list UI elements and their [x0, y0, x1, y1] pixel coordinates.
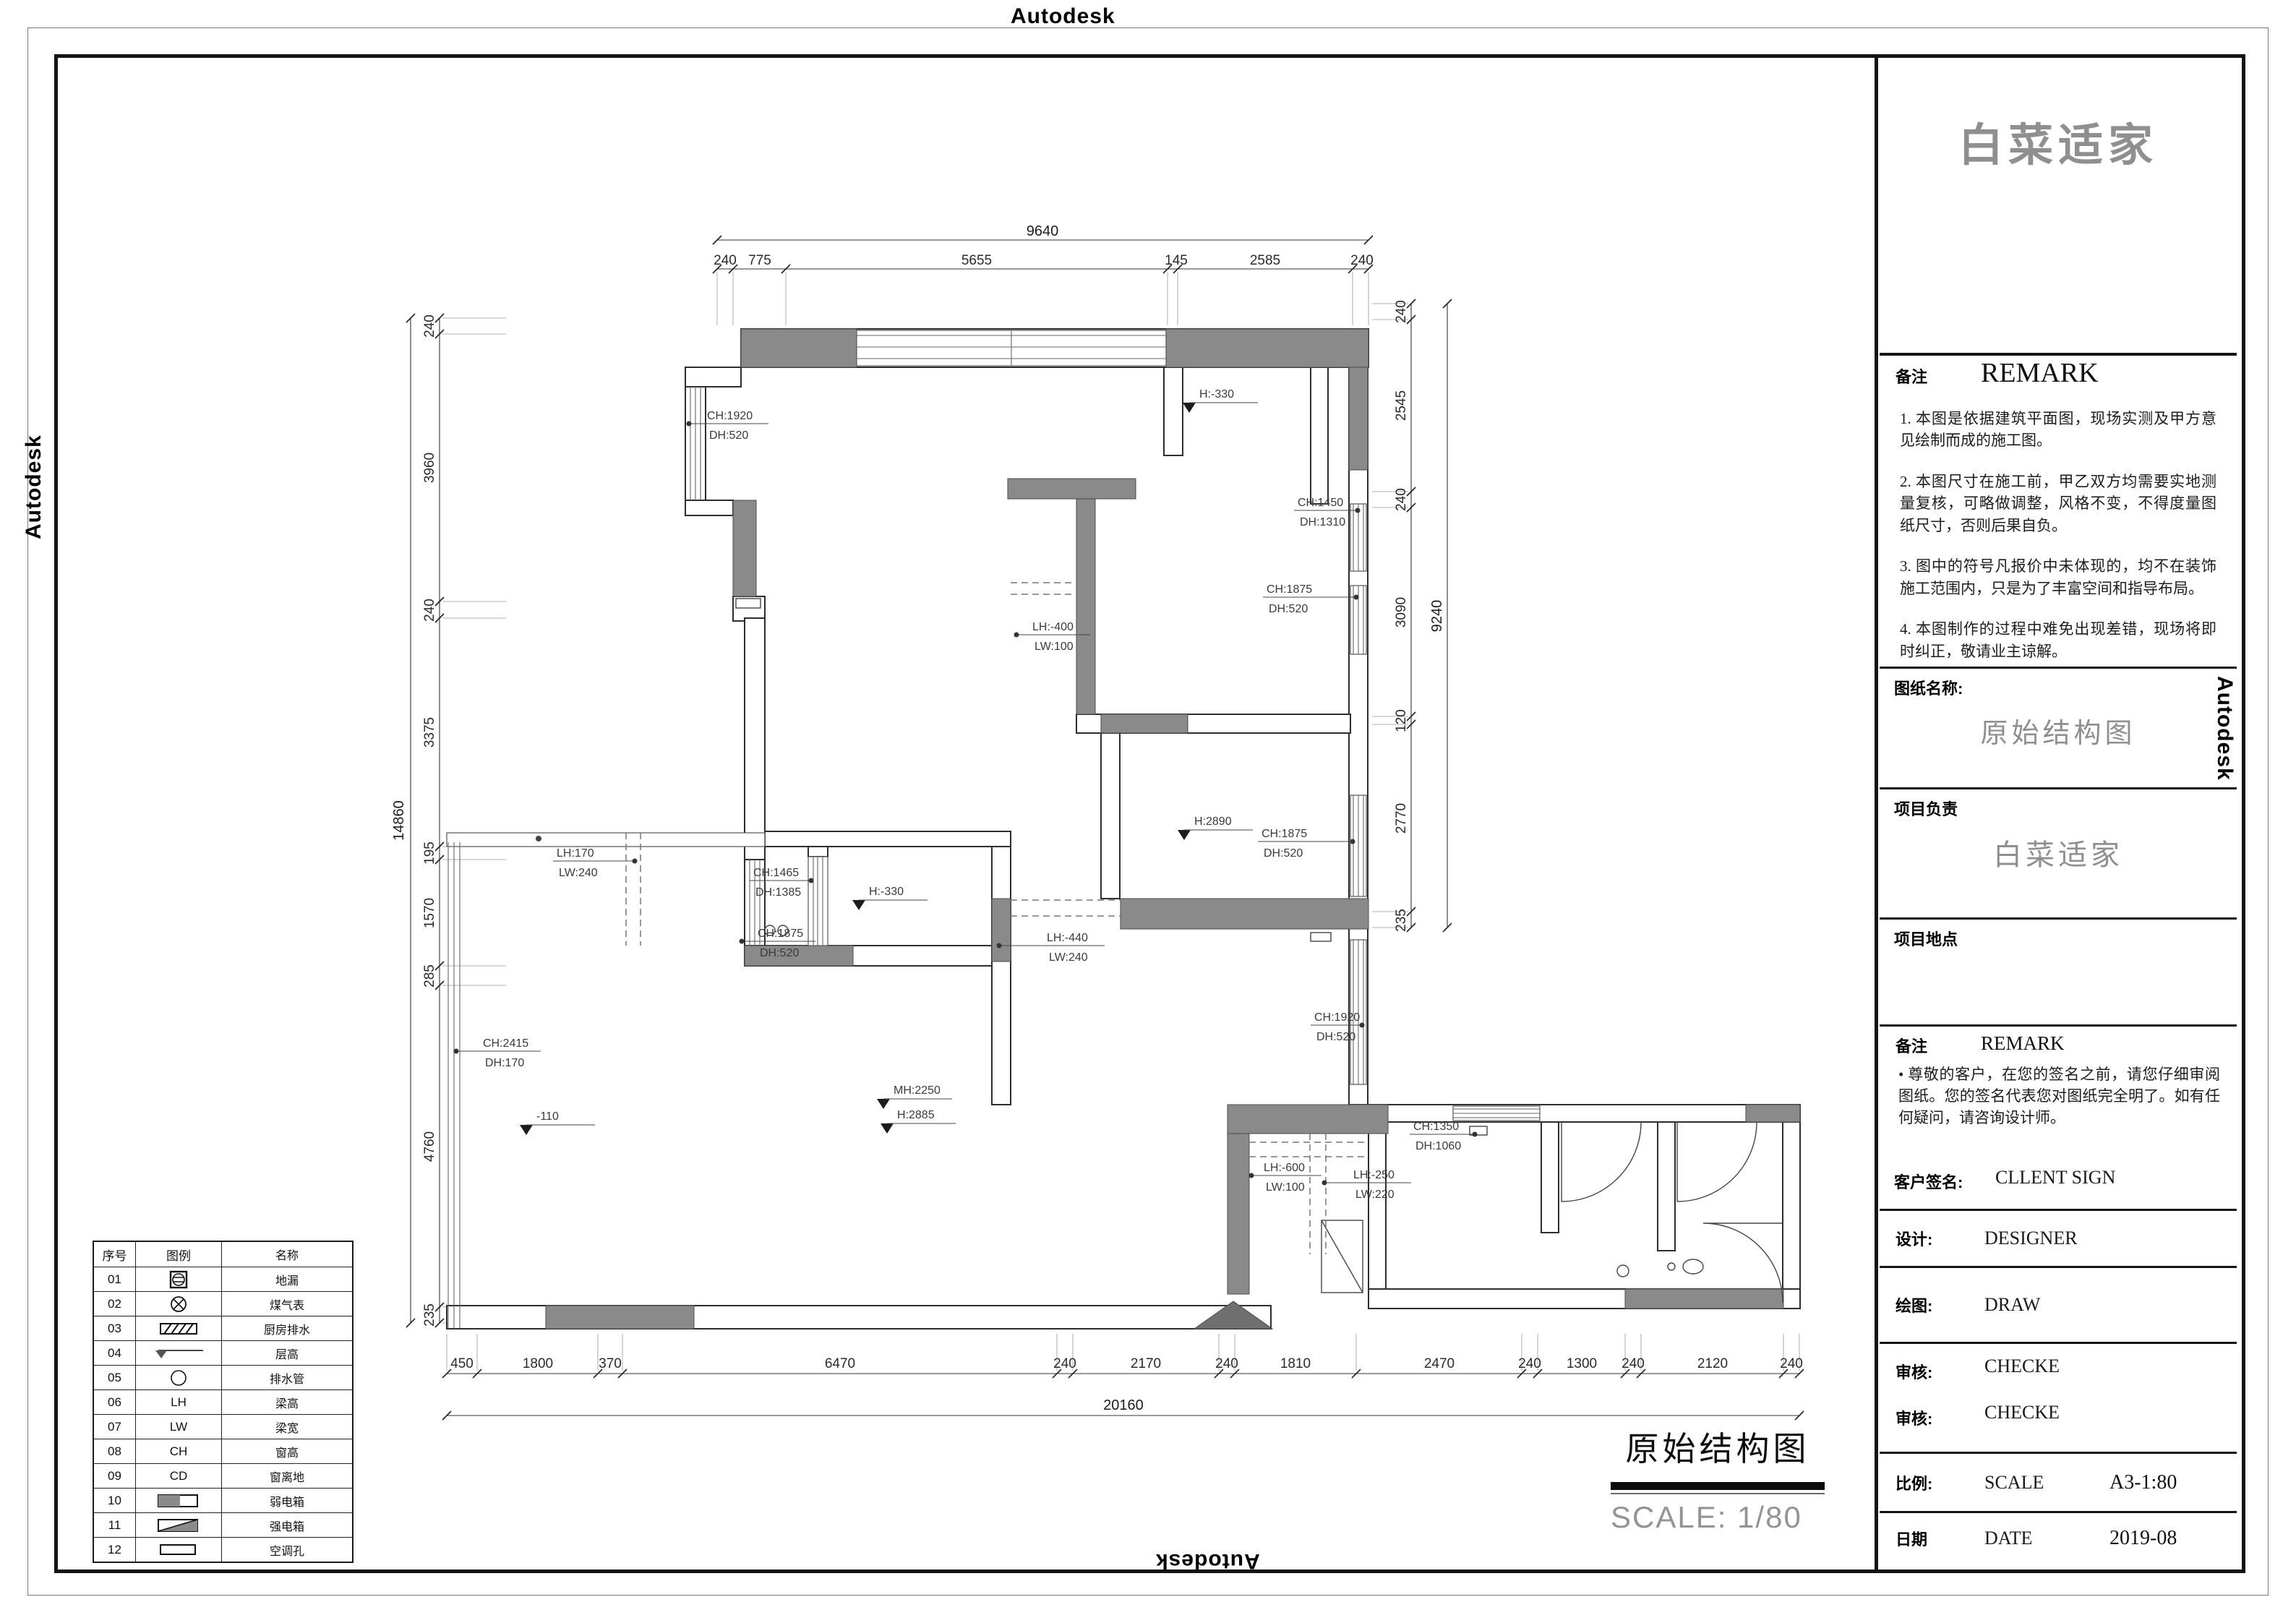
designer-label: 设计: [1896, 1227, 1932, 1250]
legend-row: 05 排水管 [94, 1365, 352, 1389]
legend-row: 11 强电箱 [94, 1512, 352, 1537]
legend-header-no: 序号 [94, 1242, 136, 1267]
check-cell: 审核: CHECKE 审核: CHECKE [1880, 1344, 2237, 1454]
legend-no: 11 [94, 1513, 136, 1537]
ch-symbol: CH [136, 1439, 222, 1463]
legend-no: 04 [94, 1341, 136, 1365]
legend-no: 06 [94, 1390, 136, 1414]
project-site-label: 项目地点 [1894, 927, 1958, 950]
legend-row: 12 空调孔 [94, 1537, 352, 1562]
legend-header-symbol: 图例 [136, 1242, 222, 1267]
legend-no: 08 [94, 1439, 136, 1463]
plan-title-block: 原始结构图 SCALE: 1/80 [1611, 1423, 1825, 1535]
legend-table: 序号 图例 名称 01 地漏 02 煤气表 03 厨房排水 04 [93, 1241, 354, 1563]
legend-row: 04 层高 [94, 1340, 352, 1365]
legend-row: 09 CD 窗离地 [94, 1463, 352, 1488]
legend-no: 05 [94, 1366, 136, 1389]
designer-cell: 设计: DESIGNER [1880, 1211, 2237, 1268]
gas-meter-icon [136, 1292, 222, 1316]
title-underline-bar [1611, 1482, 1825, 1490]
draw-label: 绘图: [1896, 1293, 1932, 1316]
level-mark-icon [136, 1341, 222, 1365]
autodesk-watermark-bottom: Autodesk [1155, 1549, 1260, 1573]
legend-name: 层高 [222, 1341, 352, 1365]
strong-current-box-icon [136, 1513, 222, 1537]
draw-value: DRAW [1984, 1294, 2040, 1316]
remark-notes: 1. 本图是依据建筑平面图，现场实测及甲方意见绘制而成的施工图。 2. 本图尺寸… [1900, 408, 2216, 681]
legend-row: 02 煤气表 [94, 1291, 352, 1316]
project-lead-value: 白菜适家 [1880, 831, 2237, 873]
floor-drain-icon [136, 1267, 222, 1291]
title-block-remark-cell: 备注 REMARK 1. 本图是依据建筑平面图，现场实测及甲方意见绘制而成的施工… [1880, 356, 2237, 669]
remark-note: 3. 图中的符号凡报价中未体现的，均不在装饰施工范围内，只是为了丰富空间和指导布… [1900, 555, 2216, 599]
drain-pipe-icon [136, 1366, 222, 1389]
legend-name: 排水管 [222, 1366, 352, 1389]
client-notice: • 尊敬的客户，在您的签名之前，请您仔细审阅图纸。您的签名代表您对图纸完全明了。… [1898, 1064, 2220, 1129]
legend-row: 06 LH 梁高 [94, 1389, 352, 1414]
legend-name: 地漏 [222, 1267, 352, 1291]
check2-value: CHECKE [1984, 1402, 2060, 1423]
date-value: 2019-08 [2109, 1527, 2177, 1550]
lw-symbol: LW [136, 1415, 222, 1439]
legend-no: 02 [94, 1292, 136, 1316]
legend-no: 10 [94, 1489, 136, 1512]
legend-no: 03 [94, 1316, 136, 1340]
sheet-name-value: 原始结构图 [1880, 711, 2237, 750]
project-site-cell: 项目地点 [1880, 920, 2237, 1027]
cd-symbol: CD [136, 1464, 222, 1488]
legend-no: 07 [94, 1415, 136, 1439]
remark2-label-cn: 备注 [1896, 1034, 1927, 1057]
remark-label-cn: 备注 [1896, 364, 1927, 387]
ac-hole-icon [136, 1538, 222, 1562]
client-sign-label: 客户签名: [1894, 1170, 1963, 1193]
scale-en: SCALE [1984, 1472, 2044, 1494]
title-block-logo-cell: 白菜适家 [1880, 58, 2237, 356]
sheet-name-label: 图纸名称: [1894, 676, 1963, 699]
lh-symbol: LH [136, 1390, 222, 1414]
remark-note: 1. 本图是依据建筑平面图，现场实测及甲方意见绘制而成的施工图。 [1900, 408, 2216, 452]
legend-row: 10 弱电箱 [94, 1488, 352, 1512]
company-logo: 白菜适家 [1880, 108, 2237, 174]
legend-header-row: 序号 图例 名称 [94, 1242, 352, 1267]
legend-row: 03 厨房排水 [94, 1316, 352, 1340]
legend-row: 08 CH 窗高 [94, 1439, 352, 1463]
scale-cell: 比例: SCALE A3-1:80 [1880, 1454, 2237, 1513]
drawing-sheet: 9640 240 775 5655 145 2585 240 14860 240… [0, 0, 2296, 1623]
legend-name: 煤气表 [222, 1292, 352, 1316]
draw-cell: 绘图: DRAW [1880, 1268, 2237, 1344]
date-en: DATE [1984, 1528, 2032, 1549]
title-underline-thin [1611, 1493, 1825, 1494]
legend-name: 梁宽 [222, 1415, 352, 1439]
legend-no: 01 [94, 1267, 136, 1291]
kitchen-drain-icon [136, 1316, 222, 1340]
client-sign-value: CLLENT SIGN [1995, 1167, 2115, 1189]
autodesk-watermark-top: Autodesk [1011, 4, 1115, 29]
legend-name: 弱电箱 [222, 1489, 352, 1512]
legend-no: 09 [94, 1464, 136, 1488]
designer-value: DESIGNER [1984, 1228, 2078, 1249]
legend-name: 窗高 [222, 1439, 352, 1463]
scale-label: 比例: [1896, 1471, 1932, 1494]
check2-label: 审核: [1896, 1406, 1932, 1429]
plan-title: 原始结构图 [1611, 1423, 1825, 1470]
plan-scale-text: SCALE: 1/80 [1611, 1500, 1825, 1535]
legend-row: 07 LW 梁宽 [94, 1414, 352, 1439]
remark-note: 4. 本图制作的过程中难免出现差错，现场将即时纠正，敬请业主谅解。 [1900, 618, 2216, 662]
legend-header-name: 名称 [222, 1242, 352, 1267]
project-lead-label: 项目负责 [1894, 797, 1958, 820]
remark2-label-en: REMARK [1981, 1032, 2065, 1055]
legend-name: 梁高 [222, 1390, 352, 1414]
client-remark-cell: 备注 REMARK • 尊敬的客户，在您的签名之前，请您仔细审阅图纸。您的签名代… [1880, 1027, 2237, 1211]
legend-name: 空调孔 [222, 1538, 352, 1562]
legend-no: 12 [94, 1538, 136, 1562]
check1-label: 审核: [1896, 1360, 1932, 1383]
date-label: 日期 [1896, 1527, 1927, 1550]
remark-label-en: REMARK [1981, 357, 2099, 389]
remark-note: 2. 本图尺寸在施工前，甲乙双方均需要实地测量复核，可略做调整，风格不变，不得度… [1900, 471, 2216, 536]
title-block-divider [1875, 54, 1878, 1570]
scale-value: A3-1:80 [2109, 1471, 2177, 1494]
sheet-name-cell: 图纸名称: 原始结构图 [1880, 669, 2237, 789]
weak-current-box-icon [136, 1489, 222, 1512]
project-lead-cell: 项目负责 白菜适家 [1880, 789, 2237, 920]
autodesk-watermark-left: Autodesk [22, 434, 46, 539]
legend-name: 强电箱 [222, 1513, 352, 1537]
legend-row: 01 地漏 [94, 1267, 352, 1291]
date-cell: 日期 DATE 2019-08 [1880, 1513, 2237, 1564]
legend-name: 窗离地 [222, 1464, 352, 1488]
check1-value: CHECKE [1984, 1356, 2060, 1377]
legend-name: 厨房排水 [222, 1316, 352, 1340]
